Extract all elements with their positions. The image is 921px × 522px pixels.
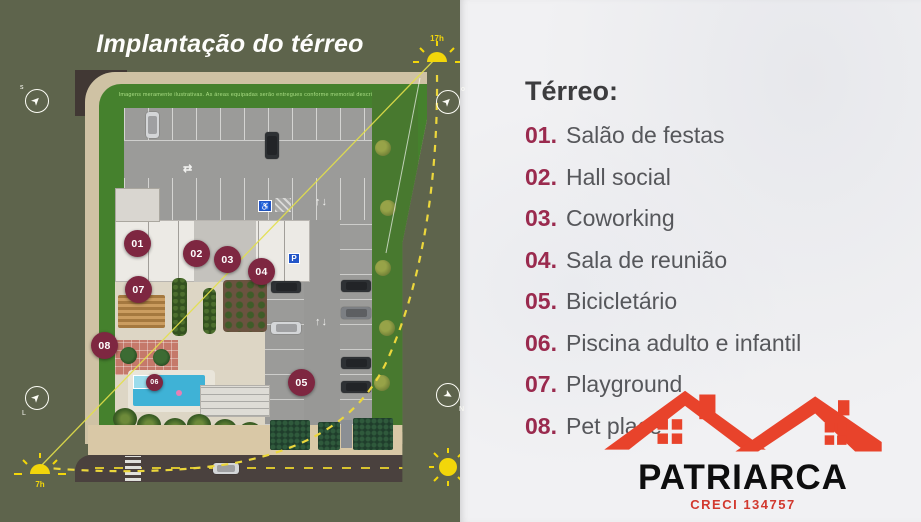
parking-aisle-line xyxy=(124,140,372,145)
car-icon xyxy=(341,307,371,319)
hedge xyxy=(318,422,340,450)
site-plan-panel: Implantação do térreo Imagens meramente … xyxy=(0,0,460,522)
building-wall xyxy=(178,221,179,283)
two-way-arrows-icon: ⇄ xyxy=(183,162,193,175)
compass-icon: ➤ xyxy=(25,89,49,113)
car-icon xyxy=(271,322,301,334)
street xyxy=(75,455,418,482)
list-item-label: Sala de reunião xyxy=(566,247,727,273)
car-icon xyxy=(146,112,159,138)
list-item-label: Bicicletário xyxy=(566,288,677,314)
list-item: 01.Salão de festas xyxy=(525,122,801,149)
list-item-label: Coworking xyxy=(566,205,675,231)
compass-letter: o xyxy=(461,86,465,93)
car-icon xyxy=(341,381,371,393)
plan-marker-01: 01 xyxy=(124,230,151,257)
accessible-parking-icon: ♿ xyxy=(258,200,272,212)
car-icon xyxy=(213,463,239,474)
lane-arrows-icon: ↑↓ xyxy=(315,316,328,328)
street-center-line xyxy=(95,467,415,469)
plan-marker-06: 06 xyxy=(146,374,163,391)
parking-stalls-top xyxy=(124,108,372,140)
plan-marker-08: 08 xyxy=(91,332,118,359)
legend-panel: Térreo: 01.Salão de festas 02.Hall socia… xyxy=(460,0,921,522)
list-item: 03.Coworking xyxy=(525,205,801,232)
list-item-label: Piscina adulto e infantil xyxy=(566,330,801,356)
list-item: 04.Sala de reunião xyxy=(525,247,801,274)
crosswalk xyxy=(125,456,141,481)
list-item: 02.Hall social xyxy=(525,164,801,191)
sun-morning-icon xyxy=(14,453,66,474)
parking-stalls-mid xyxy=(124,178,372,220)
car-icon xyxy=(341,280,371,292)
pool-float xyxy=(176,390,182,396)
roofs-icon xyxy=(597,385,889,461)
patriarca-logo: PATRIARCA CRECI 134757 xyxy=(597,385,889,512)
car-icon xyxy=(341,357,371,369)
list-item: 06.Piscina adulto e infantil xyxy=(525,330,801,357)
sun-full-icon xyxy=(429,448,460,486)
bike-room-block xyxy=(200,385,270,417)
lane-arrows-icon: ↑↓ xyxy=(315,196,328,208)
tree-icon xyxy=(380,200,396,216)
list-item-label: Salão de festas xyxy=(566,122,725,148)
gate-block xyxy=(341,420,352,448)
umbrella-icon xyxy=(120,347,137,364)
compass-letter: L xyxy=(22,410,26,417)
car-icon xyxy=(271,281,301,293)
hedge xyxy=(270,420,310,450)
list-item-label: Hall social xyxy=(566,164,671,190)
tree-icon xyxy=(375,260,391,276)
planting-bed xyxy=(223,280,267,332)
tree-icon xyxy=(374,375,390,391)
compass-icon: ➤ xyxy=(436,383,460,407)
tree-icon xyxy=(375,140,391,156)
compass-letter: s xyxy=(20,84,24,91)
tree-icon xyxy=(379,320,395,336)
umbrella-icon xyxy=(153,349,170,366)
hedge xyxy=(172,278,187,336)
plan-marker-04: 04 xyxy=(248,258,275,285)
plan-marker-03: 03 xyxy=(214,246,241,273)
list-item: 05.Bicicletário xyxy=(525,288,801,315)
car-icon xyxy=(265,132,279,159)
building-wall xyxy=(284,221,285,283)
compass-icon: ➤ xyxy=(25,386,49,410)
plan-marker-02: 02 xyxy=(183,240,210,267)
logo-creci: CRECI 134757 xyxy=(597,497,889,512)
hedge xyxy=(353,418,393,450)
sun-morning-label: 7h xyxy=(25,480,55,489)
compass-icon: ➤ xyxy=(436,90,460,114)
plan-marker-07: 07 xyxy=(125,276,152,303)
disclaimer-text: Imagens meramente ilustrativas. As áreas… xyxy=(101,92,401,98)
plan-marker-05: 05 xyxy=(288,369,315,396)
building-wall xyxy=(148,221,149,283)
compass-letter: N xyxy=(459,406,464,413)
flyer: Implantação do térreo Imagens meramente … xyxy=(0,0,921,522)
logo-name: PATRIARCA xyxy=(597,460,889,495)
parking-sign-icon: P xyxy=(288,253,300,264)
parking-stalls-right xyxy=(340,220,372,425)
legend-heading: Térreo: xyxy=(525,76,618,107)
plan-title: Implantação do térreo xyxy=(0,30,460,59)
no-parking-hatch xyxy=(275,198,291,212)
sun-evening-label: 17h xyxy=(422,34,452,43)
building-wing xyxy=(115,188,160,222)
hedge xyxy=(203,288,216,334)
